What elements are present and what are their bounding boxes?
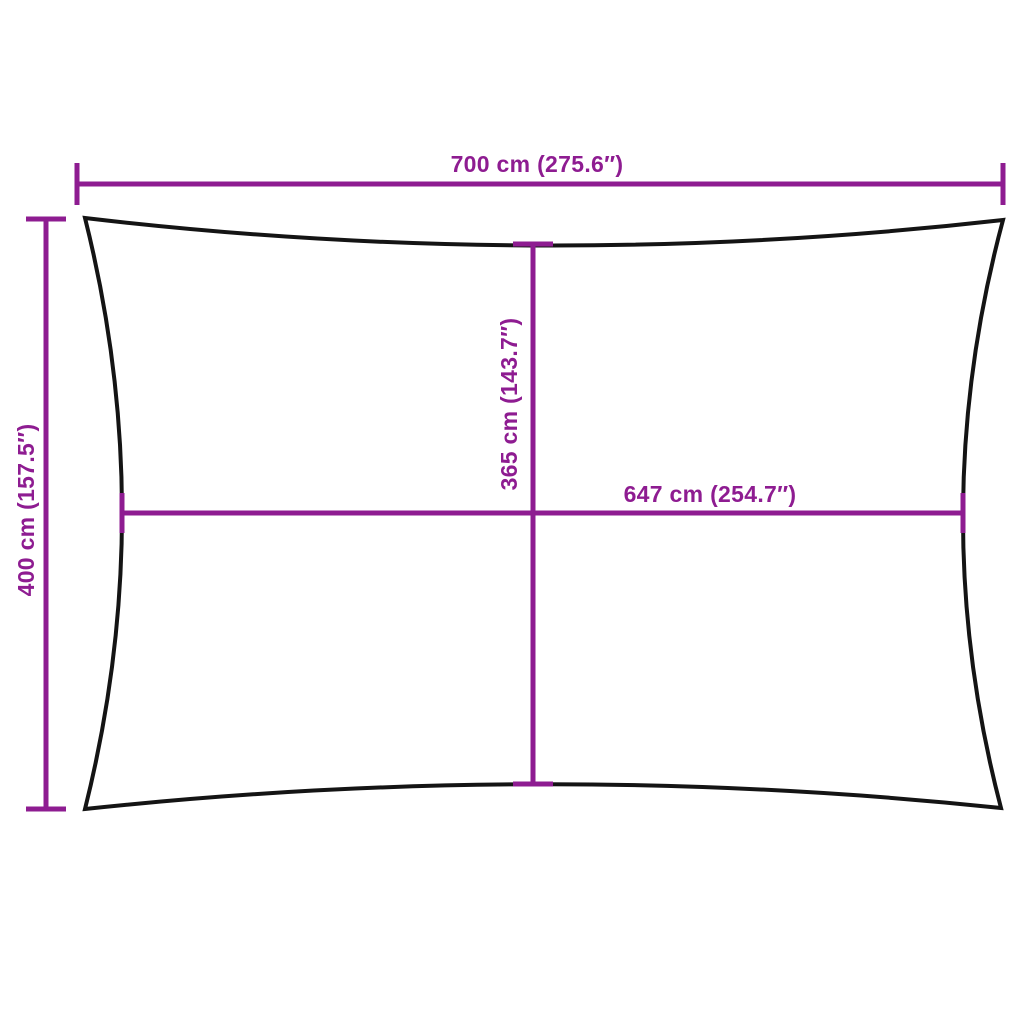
diagram-canvas: 700 cm (275.6″) 400 cm (157.5″) 365 cm (… [0,0,1024,1024]
dimension-label-width-center: 647 cm (254.7″) [624,481,797,507]
dimension-width-top: 700 cm (275.6″) [77,151,1003,205]
dimension-label-height-center: 365 cm (143.7″) [496,318,522,491]
dimension-height-left: 400 cm (157.5″) [13,219,66,809]
dimension-label-width-top: 700 cm (275.6″) [451,151,624,177]
dimension-diagram: 700 cm (275.6″) 400 cm (157.5″) 365 cm (… [0,0,1024,1024]
dimension-width-center: 647 cm (254.7″) [122,481,963,533]
dimension-label-height-left: 400 cm (157.5″) [13,424,39,597]
